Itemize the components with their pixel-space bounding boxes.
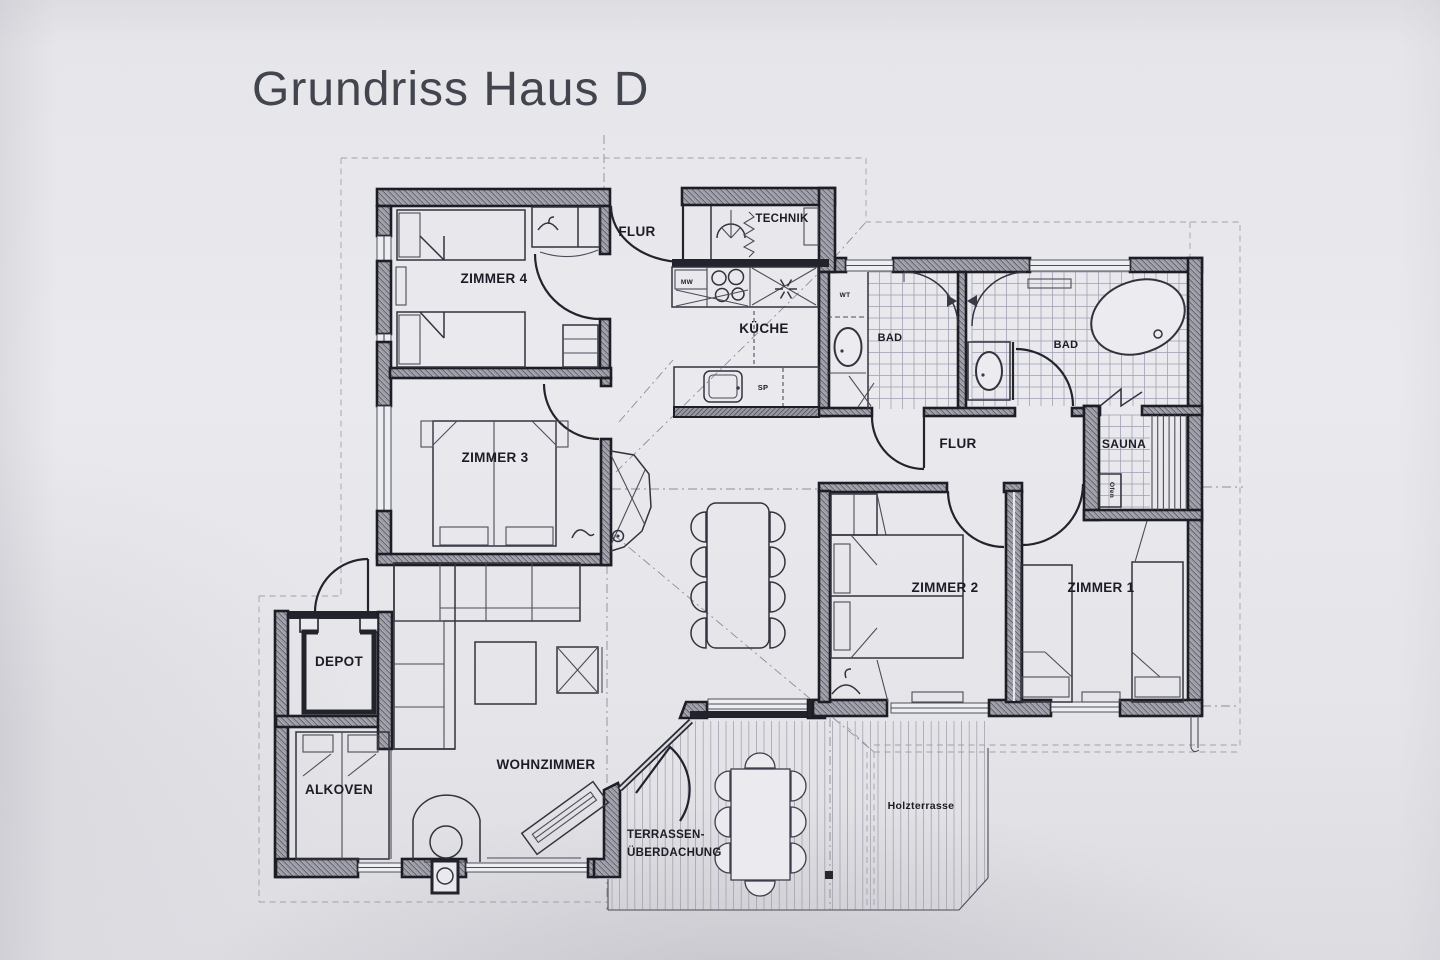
svg-text:MW: MW [681, 279, 694, 286]
svg-text:TECHNIK: TECHNIK [755, 213, 809, 225]
svg-text:DEPOT: DEPOT [315, 654, 363, 669]
svg-text:Ofen: Ofen [1108, 482, 1115, 498]
svg-text:SAUNA: SAUNA [1102, 437, 1146, 451]
svg-text:SP: SP [758, 383, 769, 392]
svg-text:ZIMMER 2: ZIMMER 2 [912, 580, 979, 595]
svg-text:TERRASSEN-: TERRASSEN- [627, 829, 705, 841]
svg-text:FLUR: FLUR [939, 436, 976, 451]
svg-text:KÜCHE: KÜCHE [739, 321, 789, 336]
svg-text:ALKOVEN: ALKOVEN [305, 782, 373, 797]
svg-text:Holzterrasse: Holzterrasse [888, 800, 955, 812]
svg-text:BAD: BAD [1054, 339, 1079, 351]
svg-text:FLUR: FLUR [618, 224, 655, 239]
svg-text:WT: WT [840, 292, 851, 299]
svg-text:ÜBERDACHUNG: ÜBERDACHUNG [627, 846, 722, 859]
svg-text:ZIMMER 4: ZIMMER 4 [461, 271, 528, 286]
svg-text:ZIMMER 1: ZIMMER 1 [1068, 580, 1135, 595]
svg-text:Grundriss Haus D: Grundriss Haus D [252, 63, 649, 116]
svg-text:BAD: BAD [878, 332, 903, 344]
svg-text:ZIMMER 3: ZIMMER 3 [462, 450, 529, 465]
svg-text:WOHNZIMMER: WOHNZIMMER [497, 757, 596, 772]
